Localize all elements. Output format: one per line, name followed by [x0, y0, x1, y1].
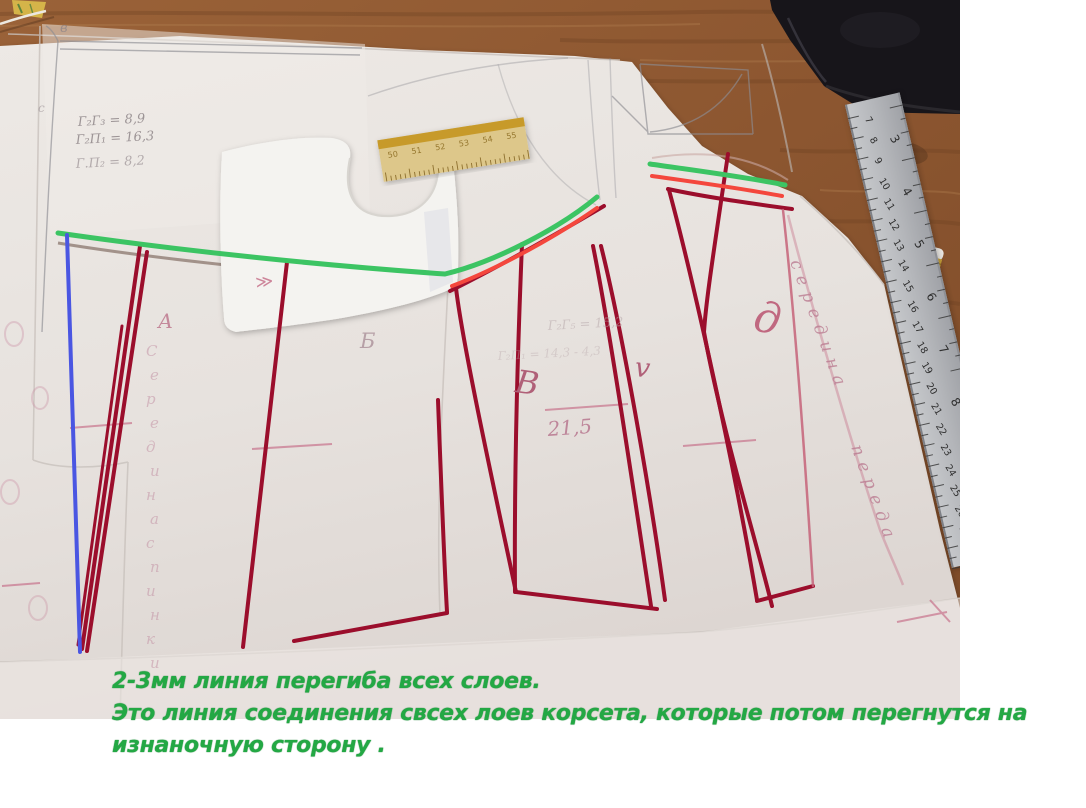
small-label-top: в [60, 21, 68, 36]
photo-of-sewing-patterns: 505152535455 789101112131415161718192021… [0, 0, 960, 719]
caption-line-2: Это линия соединения свсех лоев корсета,… [112, 701, 1027, 726]
notch-mark: ≫ [254, 271, 274, 293]
svg-text:53: 53 [458, 138, 469, 148]
svg-text:51: 51 [411, 146, 422, 156]
svg-text:52: 52 [434, 142, 445, 152]
photo-canvas: 505152535455 789101112131415161718192021… [0, 0, 960, 719]
page: 505152535455 789101112131415161718192021… [0, 0, 1086, 808]
caption-line-1: 2-3мм линия перегиба всех слоев. [112, 669, 540, 694]
svg-text:55: 55 [506, 131, 517, 141]
measure-21-5: 21,5 [546, 414, 593, 441]
piece-label-c: v [633, 352, 651, 384]
piece-label-b: Б [359, 329, 375, 353]
svg-text:54: 54 [482, 134, 493, 144]
piece-label-a: А [156, 309, 173, 333]
caption-line-3: изнаночную сторону . [112, 733, 386, 758]
small-label-side: с [38, 101, 45, 115]
svg-text:50: 50 [387, 149, 398, 159]
